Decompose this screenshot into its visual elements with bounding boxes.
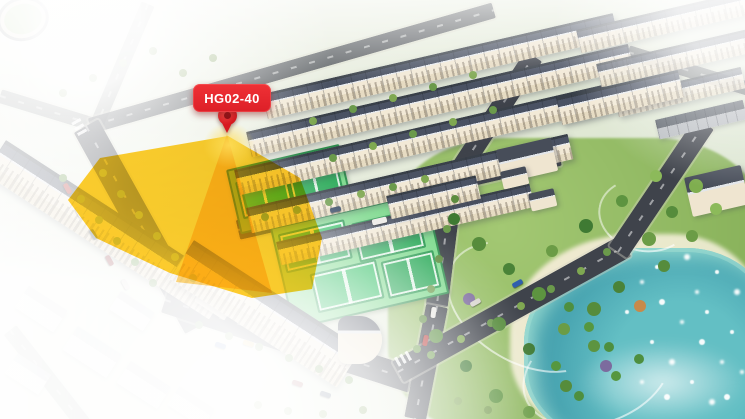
tennis-court xyxy=(380,250,441,299)
existing-house xyxy=(5,353,52,395)
existing-house xyxy=(63,326,122,378)
roundabout-plaza xyxy=(0,0,50,43)
tennis-court xyxy=(309,259,384,313)
domed-corner-building xyxy=(338,316,382,364)
aerial-site-render: HG02-40 xyxy=(0,0,745,419)
car xyxy=(319,390,331,398)
existing-house xyxy=(15,286,68,333)
park-trees xyxy=(0,0,8,8)
car xyxy=(214,341,226,349)
car xyxy=(121,278,131,290)
lot-label-text: HG02-40 xyxy=(204,91,260,106)
lot-label-badge[interactable]: HG02-40 xyxy=(193,84,271,112)
existing-house xyxy=(109,291,155,331)
existing-house xyxy=(167,386,214,419)
car xyxy=(291,379,303,387)
existing-house xyxy=(117,361,171,409)
